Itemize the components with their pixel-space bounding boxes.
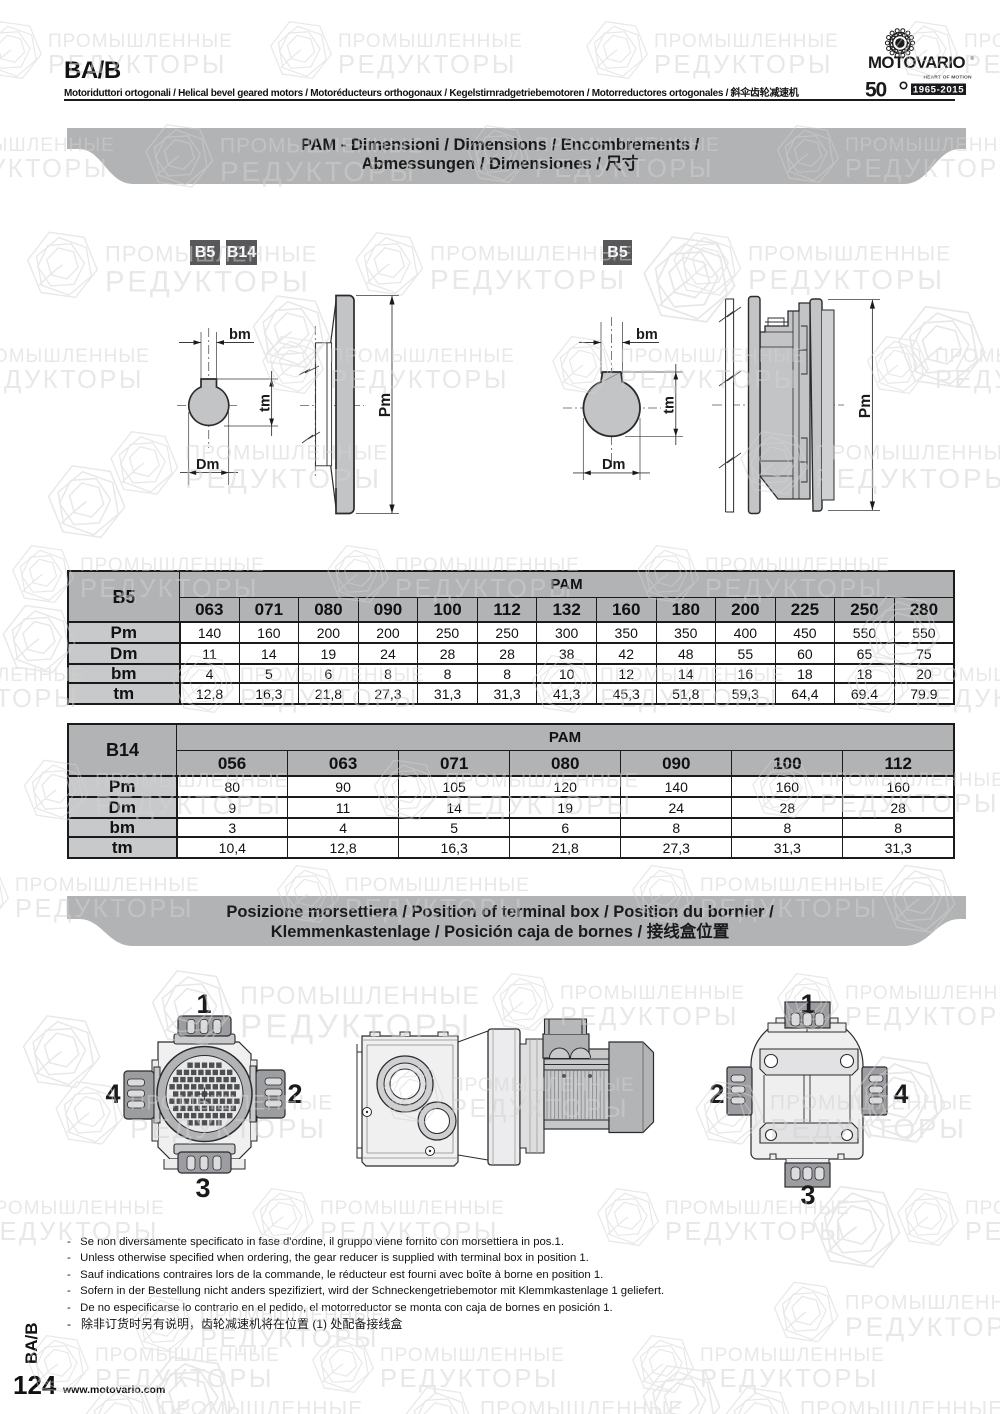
svg-text:ПРОМЫШЛЕННЫЕ: ПРОМЫШЛЕННЫЕ (95, 1345, 280, 1366)
svg-text:tm: tm (258, 394, 274, 412)
svg-text:1: 1 (196, 989, 211, 1019)
svg-text:ПРОМЫШЛЕННЫЕ: ПРОМЫШЛЕННЫЕ (380, 1345, 565, 1366)
svg-text:ПРОМЫШЛЕННЫЕ: ПРОМЫШЛЕННЫЕ (965, 1198, 1000, 1219)
svg-text:РЕДУКТОРЫ: РЕДУКТОРЫ (935, 366, 1000, 394)
svg-text:ПРОМЫШЛЕННЫЕ: ПРОМЫШЛЕННЫЕ (935, 346, 1000, 367)
svg-text:50: 50 (865, 79, 886, 101)
svg-text:4: 4 (893, 1079, 908, 1109)
svg-text:РЕДУКТОРЫ: РЕДУКТОРЫ (338, 51, 517, 79)
svg-text:ПРОМЫШЛЕННЫЕ: ПРОМЫШЛЕННЫЕ (320, 1198, 505, 1219)
svg-text:Dm: Dm (196, 457, 219, 473)
svg-text:Pm: Pm (857, 394, 874, 418)
svg-text:ПРОМЫШЛЕННЫЕ: ПРОМЫШЛЕННЫЕ (654, 31, 839, 52)
svg-text:bm: bm (636, 327, 658, 343)
svg-text:ПРОМЫШЛЕННЫЕ: ПРОМЫШЛЕННЫЕ (0, 346, 150, 367)
svg-text:HEART OF MOTION: HEART OF MOTION (924, 75, 972, 81)
svg-text:ПРОМЫШЛЕННЫЕ: ПРОМЫШЛЕННЫЕ (800, 1398, 1000, 1414)
svg-text:ПРОМЫШЛЕННЫЕ: ПРОМЫШЛЕННЫЕ (700, 1345, 885, 1366)
svg-text:4: 4 (105, 1079, 120, 1109)
svg-text:Pm: Pm (377, 393, 394, 417)
svg-text:1: 1 (800, 989, 815, 1019)
svg-text:ПРОМЫШЛЕННЫЕ: ПРОМЫШЛЕННЫЕ (160, 1398, 363, 1414)
svg-text:bm: bm (229, 327, 251, 343)
svg-text:1965-2015: 1965-2015 (913, 85, 964, 96)
svg-text:ПРОМЫШЛЕННЫЕ: ПРОМЫШЛЕННЫЕ (48, 31, 233, 52)
svg-text:РЕДУКТОРЫ: РЕДУКТОРЫ (965, 1218, 1000, 1246)
svg-text:РЕДУКТОРЫ: РЕДУКТОРЫ (845, 1312, 1000, 1342)
svg-text:tm: tm (662, 396, 678, 414)
svg-text:MOTOVARIO: MOTOVARIO (868, 53, 965, 72)
svg-text:ПРОМЫШЛЕННЫЕ: ПРОМЫШЛЕННЫЕ (748, 243, 951, 266)
svg-text:2: 2 (287, 1079, 302, 1109)
svg-text:ПРОМЫШЛЕННЫЕ: ПРОМЫШЛЕННЫЕ (338, 31, 523, 52)
svg-text:РЕДУКТОРЫ: РЕДУКТОРЫ (700, 1365, 879, 1393)
svg-text:ПРОМЫШЛЕННЫЕ: ПРОМЫШЛЕННЫЕ (480, 1398, 683, 1414)
svg-text:3: 3 (800, 1180, 815, 1210)
svg-text:РЕДУКТОРЫ: РЕДУКТОРЫ (654, 51, 833, 79)
svg-text:РЕДУКТОРЫ: РЕДУКТОРЫ (0, 366, 144, 394)
svg-text:РЕДУКТОРЫ: РЕДУКТОРЫ (380, 1365, 559, 1393)
svg-text:2: 2 (709, 1079, 724, 1109)
svg-text:РЕДУКТОРЫ: РЕДУКТОРЫ (665, 1218, 844, 1246)
svg-text:ПРОМЫШЛЕННЫЕ: ПРОМЫШЛЕННЫЕ (845, 1292, 1000, 1314)
svg-text:3: 3 (195, 1173, 210, 1203)
svg-text:®: ® (971, 55, 975, 62)
svg-text:Dm: Dm (602, 457, 625, 473)
